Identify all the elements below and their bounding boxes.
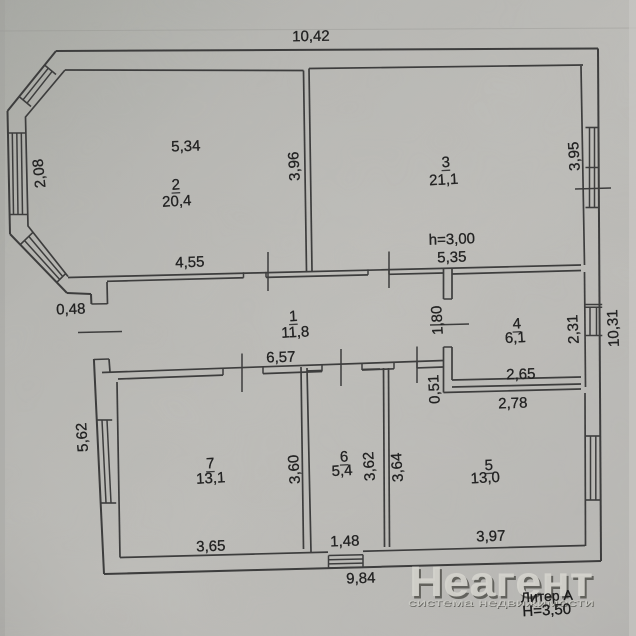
- svg-text:13,0: 13,0: [470, 469, 500, 488]
- svg-text:3,64: 3,64: [388, 452, 407, 482]
- svg-text:1,80: 1,80: [428, 305, 447, 335]
- svg-text:3,65: 3,65: [196, 537, 226, 555]
- svg-text:13,1: 13,1: [196, 469, 226, 488]
- svg-text:2: 2: [171, 176, 180, 193]
- svg-text:3,96: 3,96: [285, 151, 304, 181]
- svg-text:1: 1: [289, 308, 298, 325]
- svg-text:6,1: 6,1: [504, 329, 526, 347]
- svg-text:Н=3,50: Н=3,50: [522, 601, 572, 621]
- svg-text:2,78: 2,78: [498, 394, 528, 412]
- svg-text:0,51: 0,51: [425, 374, 444, 404]
- svg-text:6,57: 6,57: [266, 348, 296, 366]
- svg-text:2,08: 2,08: [30, 158, 50, 189]
- svg-text:21,1: 21,1: [429, 171, 459, 190]
- svg-text:5,35: 5,35: [437, 248, 467, 266]
- svg-text:5,34: 5,34: [171, 137, 201, 155]
- svg-text:3,62: 3,62: [360, 451, 379, 481]
- svg-text:3,97: 3,97: [476, 527, 506, 545]
- svg-text:20,4: 20,4: [162, 192, 192, 211]
- svg-text:5,62: 5,62: [73, 422, 92, 452]
- svg-text:0,48: 0,48: [56, 300, 86, 318]
- svg-text:11,8: 11,8: [281, 323, 310, 341]
- svg-text:10,31: 10,31: [604, 309, 623, 347]
- svg-text:3,95: 3,95: [565, 141, 584, 171]
- svg-text:9,84: 9,84: [346, 569, 376, 587]
- svg-text:3,60: 3,60: [285, 454, 304, 484]
- svg-text:1,48: 1,48: [330, 532, 360, 550]
- svg-text:h=3,00: h=3,00: [428, 230, 475, 249]
- svg-text:3: 3: [441, 154, 450, 171]
- svg-text:4,55: 4,55: [175, 253, 205, 271]
- svg-text:10,42: 10,42: [292, 28, 330, 46]
- svg-text:2,65: 2,65: [506, 365, 536, 383]
- svg-text:5,4: 5,4: [331, 462, 353, 480]
- svg-text:2,31: 2,31: [564, 314, 583, 344]
